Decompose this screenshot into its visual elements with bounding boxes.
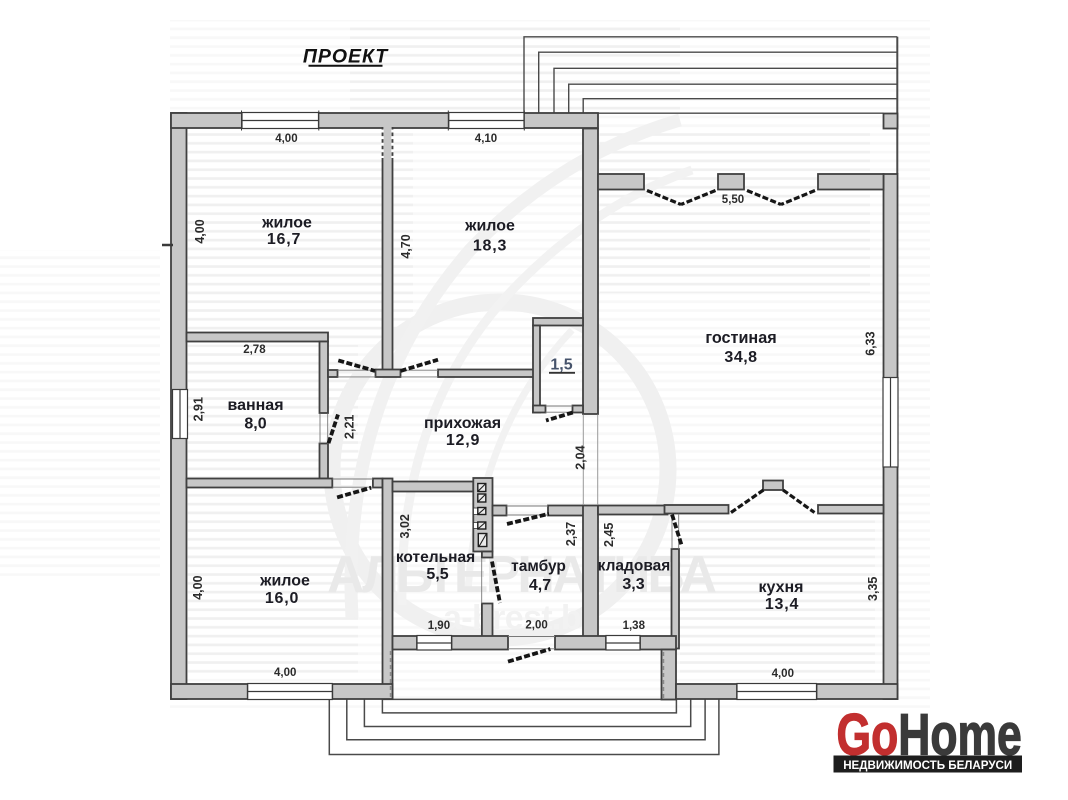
svg-text:4,10: 4,10 — [475, 133, 497, 145]
svg-text:4,00: 4,00 — [193, 219, 207, 243]
svg-text:16,7: 16,7 — [267, 231, 301, 248]
svg-text:2,00: 2,00 — [525, 620, 547, 632]
svg-text:5,5: 5,5 — [426, 566, 448, 583]
svg-text:13,4: 13,4 — [765, 596, 799, 613]
svg-text:кладовая: кладовая — [598, 558, 671, 575]
svg-text:жилое: жилое — [261, 215, 312, 232]
svg-text:2,45: 2,45 — [602, 523, 616, 547]
svg-text:4,00: 4,00 — [275, 133, 297, 145]
svg-text:1,38: 1,38 — [623, 620, 646, 632]
svg-text:6,33: 6,33 — [864, 331, 878, 355]
svg-text:4,70: 4,70 — [399, 234, 413, 258]
svg-text:2,91: 2,91 — [191, 397, 205, 421]
svg-text:1,5: 1,5 — [550, 357, 572, 374]
svg-text:18,3: 18,3 — [473, 238, 507, 255]
svg-text:жилое: жилое — [464, 218, 515, 235]
svg-text:тамбур: тамбур — [511, 558, 566, 575]
svg-text:3,35: 3,35 — [866, 577, 880, 601]
svg-text:2,37: 2,37 — [564, 522, 578, 546]
svg-text:3,3: 3,3 — [622, 576, 644, 593]
svg-text:5,50: 5,50 — [722, 194, 744, 206]
svg-text:котельная: котельная — [396, 549, 475, 566]
svg-text:4,7: 4,7 — [529, 577, 551, 594]
svg-text:3,02: 3,02 — [398, 514, 412, 538]
svg-text:ПРОЕКТ: ПРОЕКТ — [303, 46, 389, 68]
svg-text:прихожая: прихожая — [424, 415, 501, 432]
svg-text:2,78: 2,78 — [243, 344, 266, 356]
svg-text:1,90: 1,90 — [428, 620, 450, 632]
svg-text:4,00: 4,00 — [191, 575, 205, 599]
svg-text:16,0: 16,0 — [265, 590, 299, 607]
svg-text:кухня: кухня — [759, 579, 804, 596]
svg-text:2,21: 2,21 — [342, 415, 356, 439]
svg-text:a-brest.by: a-brest.by — [443, 599, 600, 637]
svg-text:12,9: 12,9 — [446, 432, 480, 449]
svg-text:4,00: 4,00 — [274, 667, 296, 679]
svg-text:8,0: 8,0 — [244, 416, 266, 433]
svg-text:4,00: 4,00 — [772, 668, 794, 680]
svg-text:34,8: 34,8 — [724, 349, 757, 366]
svg-text:2,04: 2,04 — [574, 445, 588, 469]
svg-text:ванная: ванная — [227, 397, 283, 414]
svg-text:жилое: жилое — [259, 573, 310, 590]
svg-text:гостиная: гостиная — [705, 329, 776, 347]
svg-text:НЕДВИЖИМОСТЬ БЕЛАРУСИ: НЕДВИЖИМОСТЬ БЕЛАРУСИ — [843, 759, 1012, 772]
